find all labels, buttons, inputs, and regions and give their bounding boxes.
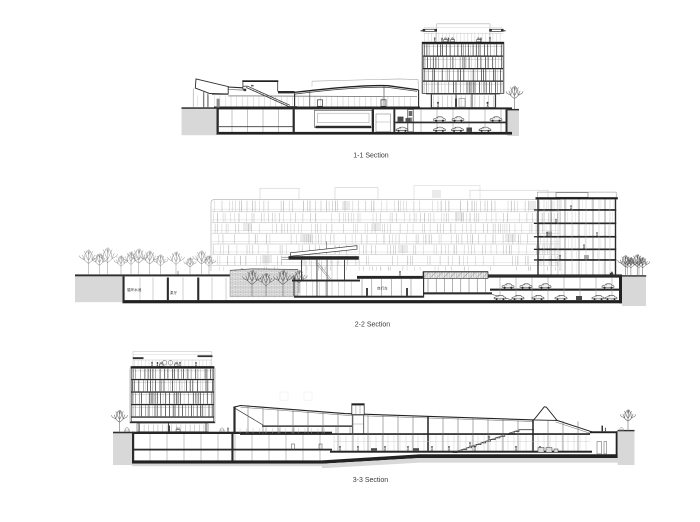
- svg-text:1-1 Section: 1-1 Section: [353, 153, 389, 160]
- svg-text:循环水池: 循环水池: [127, 287, 142, 292]
- svg-text:2-2 Section: 2-2 Section: [355, 322, 391, 329]
- svg-text:3-3 Section: 3-3 Section: [353, 477, 389, 484]
- svg-text:泵厅: 泵厅: [170, 290, 178, 295]
- svg-text:自行车: 自行车: [377, 286, 388, 291]
